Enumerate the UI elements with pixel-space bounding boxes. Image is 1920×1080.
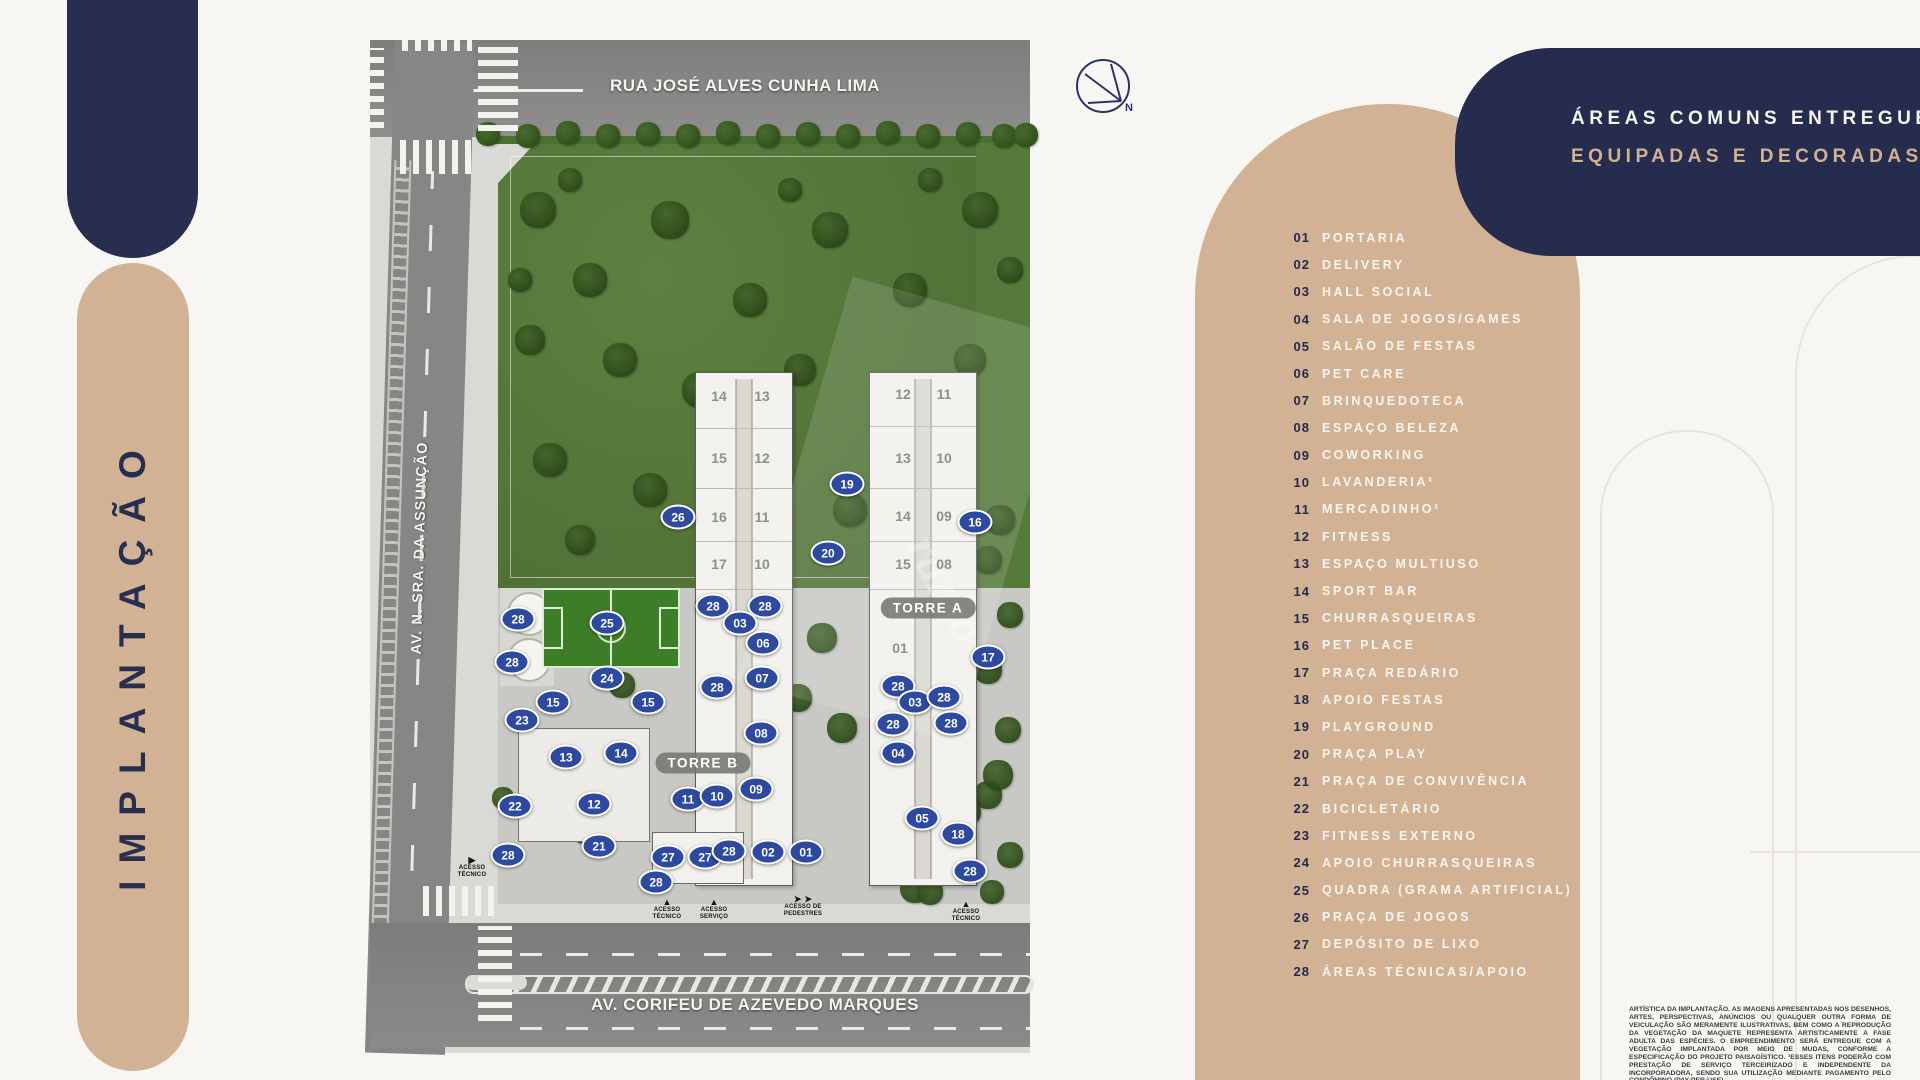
tree — [827, 713, 857, 743]
legend-item: 26PRAÇA DE JOGOS — [1278, 904, 1572, 931]
legend-item-number: 11 — [1278, 502, 1310, 517]
legend-item-label: PET CARE — [1322, 367, 1406, 381]
legal-disclaimer: ARTÍSTICA DA IMPLANTAÇÃO. AS IMAGENS APR… — [1629, 1006, 1891, 1080]
legend-item: 05SALÃO DE FESTAS — [1278, 333, 1572, 360]
tree — [812, 212, 848, 248]
access-label: ▲ACESSO TÉCNICO — [653, 898, 681, 921]
amenity-marker-17: 17 — [971, 645, 1006, 670]
legend-item: 03HALL SOCIAL — [1278, 278, 1572, 305]
amenity-marker-28: 28 — [927, 685, 962, 710]
legend-item: 14SPORT BAR — [1278, 577, 1572, 604]
access-label-text: ACESSO SERVIÇO — [700, 907, 728, 920]
legend-item-number: 18 — [1278, 692, 1310, 707]
unit-number: 12 — [754, 450, 770, 466]
legend-item-number: 02 — [1278, 257, 1310, 272]
legend-item-label: APOIO CHURRASQUEIRAS — [1322, 856, 1537, 870]
amenity-marker-22: 22 — [498, 794, 533, 819]
amenity-marker-16: 16 — [958, 510, 993, 535]
amenity-marker-15: 15 — [631, 690, 666, 715]
legend-item: 04SALA DE JOGOS/GAMES — [1278, 306, 1572, 333]
legend-item-label: FITNESS — [1322, 530, 1393, 544]
amenity-marker-15: 15 — [536, 690, 571, 715]
legend-item: 11MERCADINHO¹ — [1278, 496, 1572, 523]
amenity-marker-02: 02 — [751, 840, 786, 865]
legend-item: 13ESPAÇO MULTIUSO — [1278, 550, 1572, 577]
legend-item-number: 21 — [1278, 774, 1310, 789]
legend-item-label: PRAÇA PLAY — [1322, 747, 1428, 761]
amenity-marker-01: 01 — [789, 840, 824, 865]
legend-item-label: PRAÇA DE CONVIVÊNCIA — [1322, 774, 1529, 788]
tree — [651, 201, 689, 239]
legend-item-number: 08 — [1278, 420, 1310, 435]
amenity-marker-27: 27 — [651, 845, 686, 870]
legend-item-label: ESPAÇO MULTIUSO — [1322, 557, 1481, 571]
tree — [565, 525, 595, 555]
legend-item-number: 04 — [1278, 312, 1310, 327]
legend-item-label: HALL SOCIAL — [1322, 285, 1434, 299]
legend-item-number: 12 — [1278, 529, 1310, 544]
compass-north-label: N — [1125, 102, 1133, 114]
legend-item-label: PRAÇA REDÁRIO — [1322, 666, 1461, 680]
crosswalk — [400, 140, 474, 174]
amenity-marker-10: 10 — [700, 784, 735, 809]
access-label: ▲ACESSO SERVIÇO — [700, 898, 728, 921]
legend-item-number: 26 — [1278, 910, 1310, 925]
unit-number: 01 — [892, 640, 908, 656]
unit-number: 12 — [895, 386, 911, 402]
legend-item-label: QUADRA (GRAMA ARTIFICIAL) — [1322, 883, 1572, 897]
crosswalk — [478, 926, 512, 1021]
legend-item-number: 25 — [1278, 883, 1310, 898]
legend-item-label: LAVANDERIA¹ — [1322, 475, 1435, 489]
amenity-marker-08: 08 — [744, 721, 779, 746]
amenity-marker-28: 28 — [934, 711, 969, 736]
lane-line — [520, 1027, 1030, 1030]
amenity-marker-25: 25 — [590, 611, 625, 636]
unit-number: 17 — [711, 556, 727, 572]
navy-pill-decoration — [67, 0, 198, 258]
legend-item-label: BRINQUEDOTECA — [1322, 394, 1466, 408]
legend-item: 21PRAÇA DE CONVIVÊNCIA — [1278, 768, 1572, 795]
legend-item-number: 13 — [1278, 556, 1310, 571]
legend-item-number: 20 — [1278, 747, 1310, 762]
legend-item-number: 05 — [1278, 339, 1310, 354]
legend-item-number: 06 — [1278, 366, 1310, 381]
tree — [796, 122, 820, 146]
legend-item-number: 09 — [1278, 448, 1310, 463]
legend-item-label: DELIVERY — [1322, 258, 1405, 272]
tree — [756, 124, 780, 148]
amenity-marker-18: 18 — [941, 822, 976, 847]
legend-item: 01PORTARIA — [1278, 224, 1572, 251]
street-bottom: AV. CORIFEU DE AZEVEDO MARQUES — [370, 923, 1030, 1047]
street-name-bottom: AV. CORIFEU DE AZEVEDO MARQUES — [520, 995, 990, 1015]
legend-item: 19PLAYGROUND — [1278, 713, 1572, 740]
median-hatch — [465, 975, 1034, 994]
legend-item-number: 14 — [1278, 584, 1310, 599]
unit-number: 11 — [755, 509, 770, 525]
amenity-marker-12: 12 — [577, 792, 612, 817]
access-label: ➤ ➤ACESSO DE PEDESTRES — [784, 895, 822, 918]
access-label-text: ACESSO TÉCNICO — [653, 907, 681, 920]
access-arrow-icon: ▲ — [653, 898, 681, 907]
amenity-marker-24: 24 — [590, 666, 625, 691]
unit-number: 11 — [937, 386, 952, 402]
tree — [956, 122, 980, 146]
unit-number: 13 — [754, 388, 770, 404]
legend-item-label: BICICLETÁRIO — [1322, 802, 1442, 816]
amenity-marker-14: 14 — [604, 741, 639, 766]
tree — [516, 124, 540, 148]
legend-item-label: SALA DE JOGOS/GAMES — [1322, 312, 1523, 326]
amenity-marker-20: 20 — [811, 541, 846, 566]
unit-number: 15 — [711, 450, 727, 466]
page-title: IMPLANTAÇÃO — [112, 433, 154, 891]
legend-item: 08ESPAÇO BELEZA — [1278, 414, 1572, 441]
access-label-text: ACESSO TÉCNICO — [458, 865, 486, 878]
access-arrow-icon: ▲ — [952, 900, 980, 909]
amenity-marker-26: 26 — [661, 505, 696, 530]
header-line-1: ÁREAS COMUNS ENTREGUES — [1571, 108, 1920, 130]
legend-item-label: MERCADINHO¹ — [1322, 502, 1441, 516]
tree — [962, 192, 998, 228]
amenity-marker-05: 05 — [905, 806, 940, 831]
background-arch-outline — [1795, 255, 1920, 1080]
legend-item: 27DEPÓSITO DE LIXO — [1278, 931, 1572, 958]
amenity-marker-28: 28 — [495, 650, 530, 675]
amenity-marker-07: 07 — [745, 666, 780, 691]
legend-item: 20PRAÇA PLAY — [1278, 741, 1572, 768]
legend-item-label: SPORT BAR — [1322, 584, 1419, 598]
legend-item: 07BRINQUEDOTECA — [1278, 387, 1572, 414]
legend-item-label: SALÃO DE FESTAS — [1322, 339, 1477, 353]
legend-item-number: 15 — [1278, 611, 1310, 626]
tree — [997, 842, 1023, 868]
amenity-marker-19: 19 — [830, 472, 865, 497]
legend-item-number: 23 — [1278, 828, 1310, 843]
amenity-marker-28: 28 — [700, 675, 735, 700]
tree — [558, 168, 582, 192]
amenity-marker-28: 28 — [712, 839, 747, 864]
legend-item: 22BICICLETÁRIO — [1278, 795, 1572, 822]
legend-item-label: COWORKING — [1322, 448, 1426, 462]
header-line-2: EQUIPADAS E DECORADAS. — [1571, 146, 1920, 168]
tree — [997, 257, 1023, 283]
legend-item: 16PET PLACE — [1278, 632, 1572, 659]
tree — [508, 268, 532, 292]
access-arrow-icon: ➤ ➤ — [784, 895, 822, 904]
unit-number: 10 — [754, 556, 770, 572]
amenity-marker-28: 28 — [876, 712, 911, 737]
unit-number: 10 — [936, 450, 952, 466]
tree — [556, 121, 580, 145]
tree — [836, 124, 860, 148]
crosswalk — [402, 40, 472, 51]
site-plan-map: RUA JOSÉ ALVES CUNHA LIMA razão AV. N. S… — [370, 40, 1030, 1053]
legend-item-number: 03 — [1278, 284, 1310, 299]
legend-item: 09COWORKING — [1278, 442, 1572, 469]
unit-number: 14 — [895, 508, 911, 524]
tree — [1014, 123, 1038, 147]
tree — [997, 602, 1023, 628]
legend-item: 18APOIO FESTAS — [1278, 686, 1572, 713]
crosswalk — [423, 886, 495, 916]
tree — [633, 473, 667, 507]
tree — [876, 121, 900, 145]
tower-label: TORRE B — [655, 753, 750, 774]
access-label-text: ACESSO DE PEDESTRES — [784, 904, 822, 917]
legend-item-number: 17 — [1278, 665, 1310, 680]
legend-item-label: PET PLACE — [1322, 638, 1416, 652]
tree — [520, 192, 556, 228]
tree — [603, 343, 637, 377]
unit-number: 13 — [895, 450, 911, 466]
legend-item-label: ESPAÇO BELEZA — [1322, 421, 1461, 435]
access-label-text: ACESSO TÉCNICO — [952, 909, 980, 922]
tree — [992, 124, 1016, 148]
amenity-marker-28: 28 — [501, 607, 536, 632]
legend-item: 02DELIVERY — [1278, 251, 1572, 278]
tree — [573, 263, 607, 297]
tree — [596, 124, 620, 148]
legend-item-label: ÁREAS TÉCNICAS/APOIO — [1322, 965, 1529, 979]
lane-line — [520, 953, 1030, 956]
unit-number: 08 — [936, 556, 952, 572]
tree — [980, 880, 1004, 904]
legend-item: 12FITNESS — [1278, 523, 1572, 550]
amenity-marker-13: 13 — [549, 745, 584, 770]
legend-item-label: FITNESS EXTERNO — [1322, 829, 1478, 843]
legend-item-number: 28 — [1278, 964, 1310, 979]
legend-item-label: PLAYGROUND — [1322, 720, 1436, 734]
legend-item: 28ÁREAS TÉCNICAS/APOIO — [1278, 958, 1572, 985]
tree — [636, 122, 660, 146]
tree — [983, 760, 1013, 790]
amenities-legend: 01PORTARIA02DELIVERY03HALL SOCIAL04SALA … — [1278, 224, 1572, 985]
legend-item-label: DEPÓSITO DE LIXO — [1322, 937, 1481, 951]
legend-item-label: PORTARIA — [1322, 231, 1407, 245]
legend-item: 15CHURRASQUEIRAS — [1278, 605, 1572, 632]
legend-item: 24APOIO CHURRASQUEIRAS — [1278, 849, 1572, 876]
amenity-marker-09: 09 — [739, 777, 774, 802]
amenity-marker-23: 23 — [505, 708, 540, 733]
access-label: ▲ACESSO TÉCNICO — [952, 900, 980, 923]
legend-item-number: 19 — [1278, 719, 1310, 734]
tower-label: TORRE A — [881, 598, 976, 619]
legend-item: 23FITNESS EXTERNO — [1278, 822, 1572, 849]
legend-item-number: 22 — [1278, 801, 1310, 816]
court-goal-box — [659, 607, 680, 649]
access-arrow-icon: ▲ — [700, 898, 728, 907]
amenity-marker-06: 06 — [746, 631, 781, 656]
unit-number: 14 — [711, 388, 727, 404]
unit-number: 16 — [711, 509, 727, 525]
amenity-marker-28: 28 — [953, 859, 988, 884]
legend-item-number: 16 — [1278, 638, 1310, 653]
legend-item-label: PRAÇA DE JOGOS — [1322, 910, 1471, 924]
compass: N — [1073, 56, 1139, 127]
unit-number: 15 — [895, 556, 911, 572]
court-goal-box — [542, 607, 563, 649]
unit-number: 09 — [936, 508, 952, 524]
amenity-marker-21: 21 — [582, 834, 617, 859]
legend-item-number: 10 — [1278, 475, 1310, 490]
crosswalk — [478, 46, 518, 131]
legend-item-label: CHURRASQUEIRAS — [1322, 611, 1478, 625]
legend-item-label: APOIO FESTAS — [1322, 693, 1445, 707]
tree — [995, 717, 1021, 743]
legend-item-number: 24 — [1278, 855, 1310, 870]
legend-item: 06PET CARE — [1278, 360, 1572, 387]
tree — [676, 124, 700, 148]
street-name-left: AV. N. SRA. DA ASSUNÇÃO — [409, 441, 431, 654]
legend-item-number: 01 — [1278, 230, 1310, 245]
tree — [515, 325, 545, 355]
background-arch-outline — [1600, 430, 1774, 1080]
bike-lane-pattern — [371, 160, 411, 940]
amenity-marker-28: 28 — [639, 870, 674, 895]
legend-item: 17PRAÇA REDÁRIO — [1278, 659, 1572, 686]
tree — [918, 168, 942, 192]
access-arrow-icon: ▶ — [458, 856, 486, 865]
background-line — [1750, 851, 1920, 853]
tree — [916, 124, 940, 148]
tree — [778, 178, 802, 202]
legend-item-number: 07 — [1278, 393, 1310, 408]
amenity-marker-04: 04 — [881, 741, 916, 766]
amenity-marker-28: 28 — [491, 843, 526, 868]
crosswalk — [370, 48, 384, 128]
legend-item: 10LAVANDERIA¹ — [1278, 469, 1572, 496]
tree — [533, 443, 567, 477]
tree — [716, 121, 740, 145]
street-name-top: RUA JOSÉ ALVES CUNHA LIMA — [610, 76, 880, 96]
tree — [733, 283, 767, 317]
access-label: ▶ACESSO TÉCNICO — [458, 856, 486, 879]
legend-item: 25QUADRA (GRAMA ARTIFICIAL) — [1278, 877, 1572, 904]
legend-item-number: 27 — [1278, 937, 1310, 952]
